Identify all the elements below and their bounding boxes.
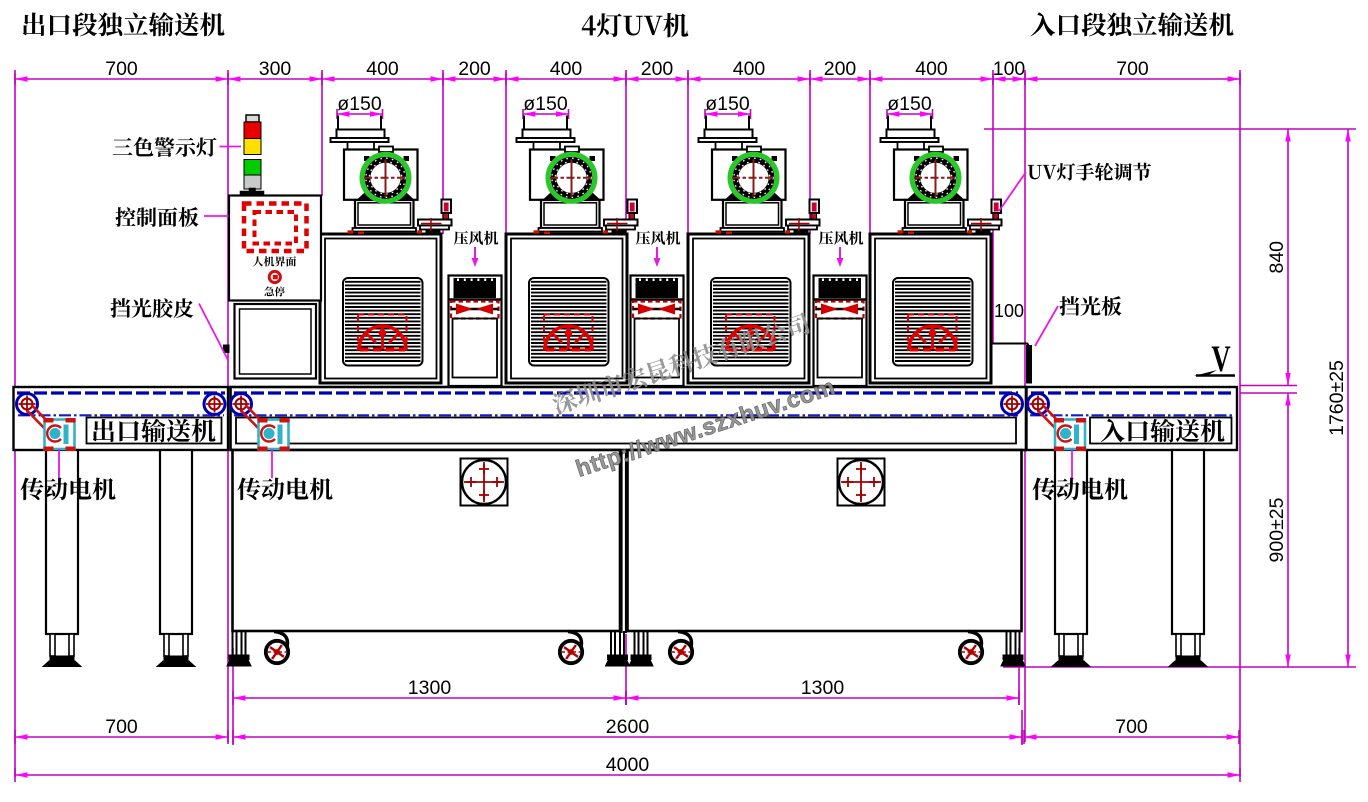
svg-text:1760±25: 1760±25	[1326, 360, 1348, 436]
svg-text:840: 840	[1266, 241, 1288, 274]
svg-text:4000: 4000	[606, 754, 650, 776]
svg-text:ø150: ø150	[887, 93, 932, 115]
svg-text:ø150: ø150	[337, 93, 382, 115]
svg-text:400: 400	[550, 58, 583, 80]
svg-text:700: 700	[1115, 716, 1148, 738]
svg-text:V: V	[1211, 338, 1230, 379]
svg-text:400: 400	[366, 58, 399, 80]
svg-text:1300: 1300	[801, 677, 845, 699]
svg-text:400: 400	[733, 58, 766, 80]
svg-text:100: 100	[994, 301, 1024, 321]
svg-text:700: 700	[105, 58, 138, 80]
svg-text:100: 100	[993, 58, 1026, 80]
svg-text:900±25: 900±25	[1266, 497, 1288, 562]
svg-text:2600: 2600	[606, 716, 650, 738]
svg-text:200: 200	[824, 58, 857, 80]
svg-text:1300: 1300	[408, 677, 452, 699]
svg-text:200: 200	[458, 58, 491, 80]
svg-text:400: 400	[915, 58, 948, 80]
svg-text:ø150: ø150	[705, 93, 750, 115]
svg-text:200: 200	[641, 58, 674, 80]
svg-text:ø150: ø150	[523, 93, 568, 115]
svg-text:300: 300	[259, 58, 292, 80]
svg-text:700: 700	[1116, 58, 1149, 80]
svg-text:700: 700	[105, 716, 138, 738]
